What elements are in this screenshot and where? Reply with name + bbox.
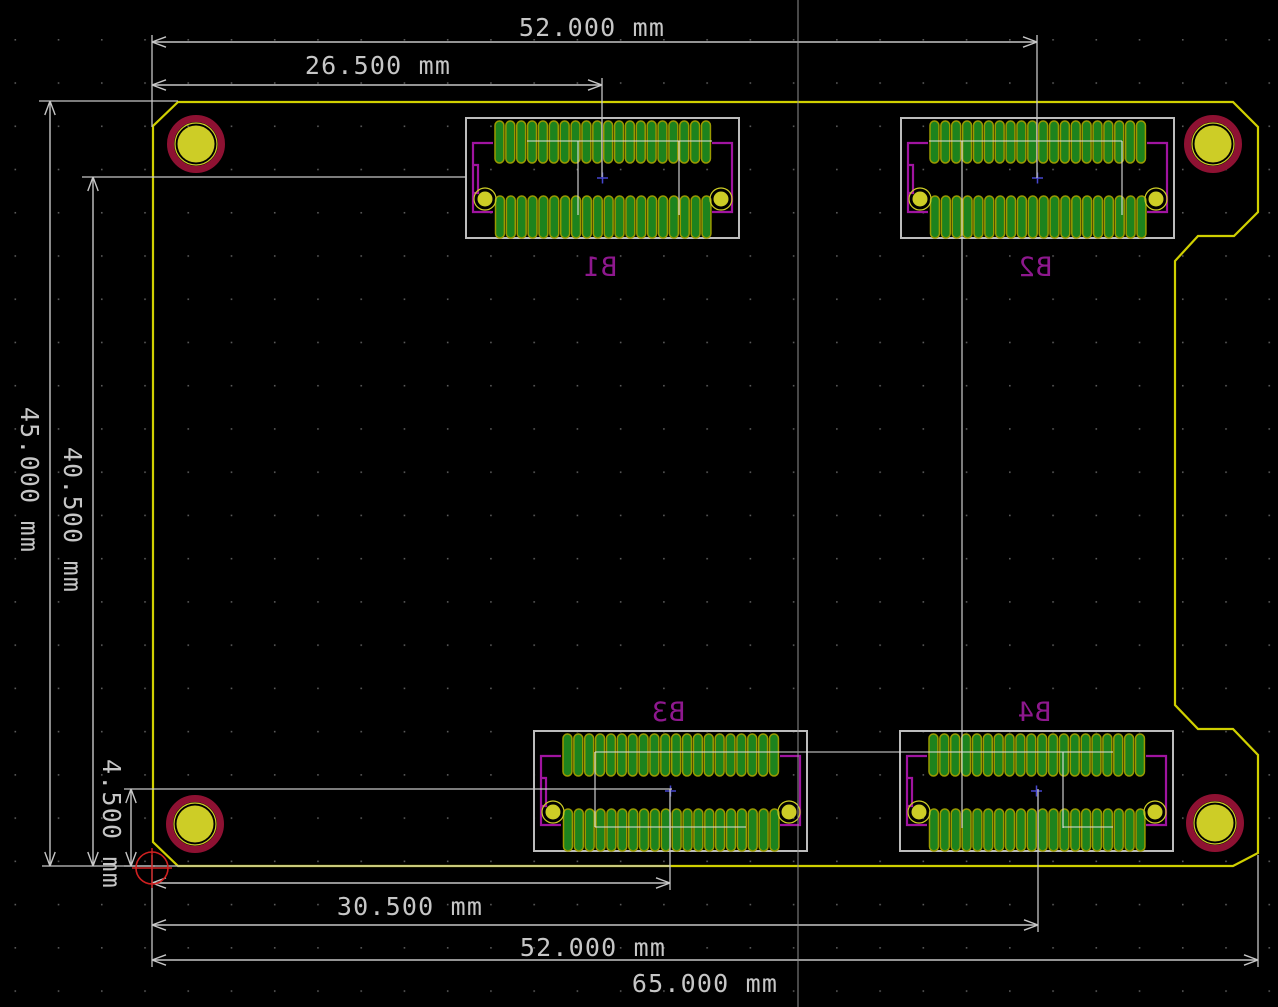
smd-pad[interactable] [1007, 196, 1016, 238]
dimension-label[interactable]: 52.000 mm [519, 13, 665, 42]
smd-pad[interactable] [680, 196, 689, 238]
smd-pad[interactable] [691, 196, 700, 238]
smd-pad[interactable] [582, 196, 591, 238]
smd-pad[interactable] [628, 734, 637, 776]
smd-pad[interactable] [1115, 196, 1124, 238]
hole-pad [1197, 805, 1234, 842]
smd-pad[interactable] [639, 734, 648, 776]
smd-pad[interactable] [1126, 196, 1135, 238]
pad-center [714, 192, 729, 207]
smd-pad[interactable] [1125, 809, 1134, 851]
smd-pad[interactable] [1125, 734, 1134, 776]
smd-pad[interactable] [984, 121, 993, 163]
smd-pad[interactable] [1114, 734, 1123, 776]
pad-center [913, 192, 928, 207]
smd-pad[interactable] [715, 734, 724, 776]
smd-pad[interactable] [963, 196, 972, 238]
smd-pad[interactable] [615, 121, 624, 163]
smd-pad[interactable] [1137, 121, 1146, 163]
smd-pad[interactable] [539, 196, 548, 238]
hole-pad [177, 806, 214, 843]
smd-pad[interactable] [737, 734, 746, 776]
dimension-label[interactable]: 65.000 mm [632, 969, 778, 998]
smd-pad[interactable] [506, 121, 515, 163]
smd-pad[interactable] [650, 809, 659, 851]
smd-pad[interactable] [694, 809, 703, 851]
smd-pad[interactable] [604, 196, 613, 238]
smd-pad[interactable] [985, 196, 994, 238]
smd-pad[interactable] [1016, 734, 1025, 776]
smd-pad[interactable] [1081, 734, 1090, 776]
smd-pad[interactable] [996, 196, 1005, 238]
smd-pad[interactable] [984, 809, 993, 851]
pad-center [782, 805, 797, 820]
smd-pad[interactable] [615, 196, 624, 238]
smd-pad[interactable] [636, 121, 645, 163]
smd-pad[interactable] [550, 196, 559, 238]
smd-pad[interactable] [941, 121, 950, 163]
smd-pad[interactable] [930, 809, 939, 851]
smd-pad[interactable] [702, 121, 711, 163]
smd-pad[interactable] [702, 196, 711, 238]
smd-pad[interactable] [704, 734, 713, 776]
smd-pad[interactable] [669, 196, 678, 238]
pad-center [546, 805, 561, 820]
reference-designator-B4[interactable]: B4 [1017, 697, 1052, 728]
smd-pad[interactable] [1006, 121, 1015, 163]
smd-pad[interactable] [626, 196, 635, 238]
smd-pad[interactable] [1039, 121, 1048, 163]
smd-pad[interactable] [596, 809, 605, 851]
smd-pad[interactable] [962, 734, 971, 776]
smd-pad[interactable] [618, 809, 627, 851]
smd-pad[interactable] [930, 121, 939, 163]
smd-pad[interactable] [637, 196, 646, 238]
smd-pad[interactable] [574, 734, 583, 776]
smd-pad[interactable] [585, 809, 594, 851]
smd-pad[interactable] [929, 734, 938, 776]
smd-pad[interactable] [625, 121, 634, 163]
smd-pad[interactable] [770, 809, 779, 851]
smd-pad[interactable] [572, 196, 581, 238]
smd-pad[interactable] [1136, 734, 1145, 776]
smd-pad[interactable] [1070, 734, 1079, 776]
dimension-label[interactable]: 4.500 mm [97, 759, 126, 889]
mounting-hole[interactable] [170, 799, 221, 850]
smd-pad[interactable] [585, 734, 594, 776]
smd-pad[interactable] [962, 809, 971, 851]
smd-pad[interactable] [995, 121, 1004, 163]
smd-pad[interactable] [1027, 809, 1036, 851]
smd-pad[interactable] [759, 734, 768, 776]
reference-designator-B3[interactable]: B3 [651, 697, 686, 728]
dimension-label[interactable]: 40.500 mm [58, 447, 87, 593]
smd-pad[interactable] [1082, 121, 1091, 163]
smd-pad[interactable] [571, 121, 580, 163]
smd-pad[interactable] [972, 734, 981, 776]
smd-pad[interactable] [647, 121, 656, 163]
smd-pad[interactable] [1093, 121, 1102, 163]
smd-pad[interactable] [1092, 734, 1101, 776]
smd-pad[interactable] [952, 196, 961, 238]
smd-pad[interactable] [1050, 121, 1059, 163]
smd-pad[interactable] [1103, 734, 1112, 776]
smd-pad[interactable] [716, 809, 725, 851]
smd-pad[interactable] [495, 121, 504, 163]
smd-pad[interactable] [593, 121, 602, 163]
smd-pad[interactable] [952, 121, 961, 163]
smd-pad[interactable] [1104, 121, 1113, 163]
smd-pad[interactable] [1050, 196, 1059, 238]
smd-pad[interactable] [963, 121, 972, 163]
smd-pad[interactable] [661, 809, 670, 851]
smd-pad[interactable] [1027, 734, 1036, 776]
hole-pad [178, 126, 215, 163]
smd-pad[interactable] [1103, 809, 1112, 851]
smd-pad[interactable] [1072, 196, 1081, 238]
smd-pad[interactable] [517, 121, 526, 163]
smd-pad[interactable] [974, 196, 983, 238]
smd-pad[interactable] [726, 734, 735, 776]
smd-pad[interactable] [770, 734, 779, 776]
smd-pad[interactable] [973, 121, 982, 163]
smd-pad[interactable] [617, 734, 626, 776]
smd-pad[interactable] [1137, 196, 1146, 238]
dimension-label[interactable]: 26.500 mm [305, 51, 451, 80]
smd-pad[interactable] [1126, 121, 1135, 163]
smd-pad[interactable] [951, 809, 960, 851]
smd-pad[interactable] [940, 809, 949, 851]
smd-pad[interactable] [683, 734, 692, 776]
smd-pad[interactable] [1039, 196, 1048, 238]
smd-pad[interactable] [691, 121, 700, 163]
smd-pad[interactable] [737, 809, 746, 851]
smd-pad[interactable] [1049, 809, 1058, 851]
smd-pad[interactable] [1094, 196, 1103, 238]
smd-pad[interactable] [1061, 196, 1070, 238]
smd-pad[interactable] [973, 809, 982, 851]
pad-center [1148, 805, 1163, 820]
smd-pad[interactable] [606, 734, 615, 776]
pad-center [912, 805, 927, 820]
reference-designator-B1[interactable]: B1 [583, 252, 618, 283]
smd-pad[interactable] [659, 196, 668, 238]
reference-designator-B2[interactable]: B2 [1018, 252, 1053, 283]
smd-pad[interactable] [607, 809, 616, 851]
smd-pad[interactable] [1104, 196, 1113, 238]
smd-pad[interactable] [1017, 121, 1026, 163]
smd-pad[interactable] [748, 809, 757, 851]
smd-pad[interactable] [1083, 196, 1092, 238]
smd-pad[interactable] [538, 121, 547, 163]
dimension-label[interactable]: 30.500 mm [337, 892, 483, 921]
smd-pad[interactable] [1005, 734, 1014, 776]
smd-pad[interactable] [1114, 809, 1123, 851]
smd-pad[interactable] [629, 809, 638, 851]
smd-pad[interactable] [1136, 809, 1145, 851]
smd-pad[interactable] [1017, 196, 1026, 238]
smd-pad[interactable] [941, 196, 950, 238]
smd-pad[interactable] [994, 734, 1003, 776]
mounting-hole[interactable] [1190, 798, 1241, 849]
smd-pad[interactable] [1071, 121, 1080, 163]
mounting-hole[interactable] [171, 119, 222, 170]
smd-pad[interactable] [560, 121, 569, 163]
pad-center [478, 192, 493, 207]
smd-pad[interactable] [940, 734, 949, 776]
smd-pad[interactable] [951, 734, 960, 776]
smd-pad[interactable] [1071, 809, 1080, 851]
smd-pad[interactable] [727, 809, 736, 851]
smd-pad[interactable] [669, 121, 678, 163]
pcb-canvas[interactable]: B1B2B3B452.000 mm26.500 mm45.000 mm40.50… [0, 0, 1278, 1007]
smd-pad[interactable] [1059, 734, 1068, 776]
smd-pad[interactable] [672, 809, 681, 851]
smd-pad[interactable] [561, 196, 570, 238]
smd-pad[interactable] [496, 196, 505, 238]
smd-pad[interactable] [995, 809, 1004, 851]
smd-pad[interactable] [672, 734, 681, 776]
smd-pad[interactable] [683, 809, 692, 851]
smd-pad[interactable] [1038, 734, 1047, 776]
mounting-hole[interactable] [1188, 119, 1239, 170]
smd-pad[interactable] [593, 196, 602, 238]
smd-pad[interactable] [549, 121, 558, 163]
smd-pad[interactable] [563, 734, 572, 776]
dimension-label[interactable]: 52.000 mm [520, 933, 666, 962]
smd-pad[interactable] [1060, 809, 1069, 851]
smd-pad[interactable] [748, 734, 757, 776]
smd-pad[interactable] [517, 196, 526, 238]
smd-pad[interactable] [574, 809, 583, 851]
smd-pad[interactable] [1006, 809, 1015, 851]
smd-pad[interactable] [1093, 809, 1102, 851]
smd-pad[interactable] [1049, 734, 1058, 776]
smd-pad[interactable] [931, 196, 940, 238]
smd-pad[interactable] [693, 734, 702, 776]
pad-center [1149, 192, 1164, 207]
smd-pad[interactable] [506, 196, 515, 238]
smd-pad[interactable] [1028, 121, 1037, 163]
smd-pad[interactable] [1016, 809, 1025, 851]
smd-pad[interactable] [1082, 809, 1091, 851]
hole-pad [1195, 126, 1232, 163]
smd-pad[interactable] [648, 196, 657, 238]
smd-pad[interactable] [705, 809, 714, 851]
smd-pad[interactable] [1060, 121, 1069, 163]
smd-pad[interactable] [658, 121, 667, 163]
smd-pad[interactable] [528, 121, 537, 163]
smd-pad[interactable] [582, 121, 591, 163]
smd-pad[interactable] [759, 809, 768, 851]
smd-pad[interactable] [604, 121, 613, 163]
smd-pad[interactable] [983, 734, 992, 776]
smd-pad[interactable] [1038, 809, 1047, 851]
smd-pad[interactable] [1028, 196, 1037, 238]
smd-pad[interactable] [528, 196, 537, 238]
dimension-label[interactable]: 45.000 mm [15, 407, 44, 553]
smd-pad[interactable] [564, 809, 573, 851]
smd-pad[interactable] [661, 734, 670, 776]
smd-pad[interactable] [596, 734, 605, 776]
smd-pad[interactable] [680, 121, 689, 163]
smd-pad[interactable] [640, 809, 649, 851]
smd-pad[interactable] [650, 734, 659, 776]
